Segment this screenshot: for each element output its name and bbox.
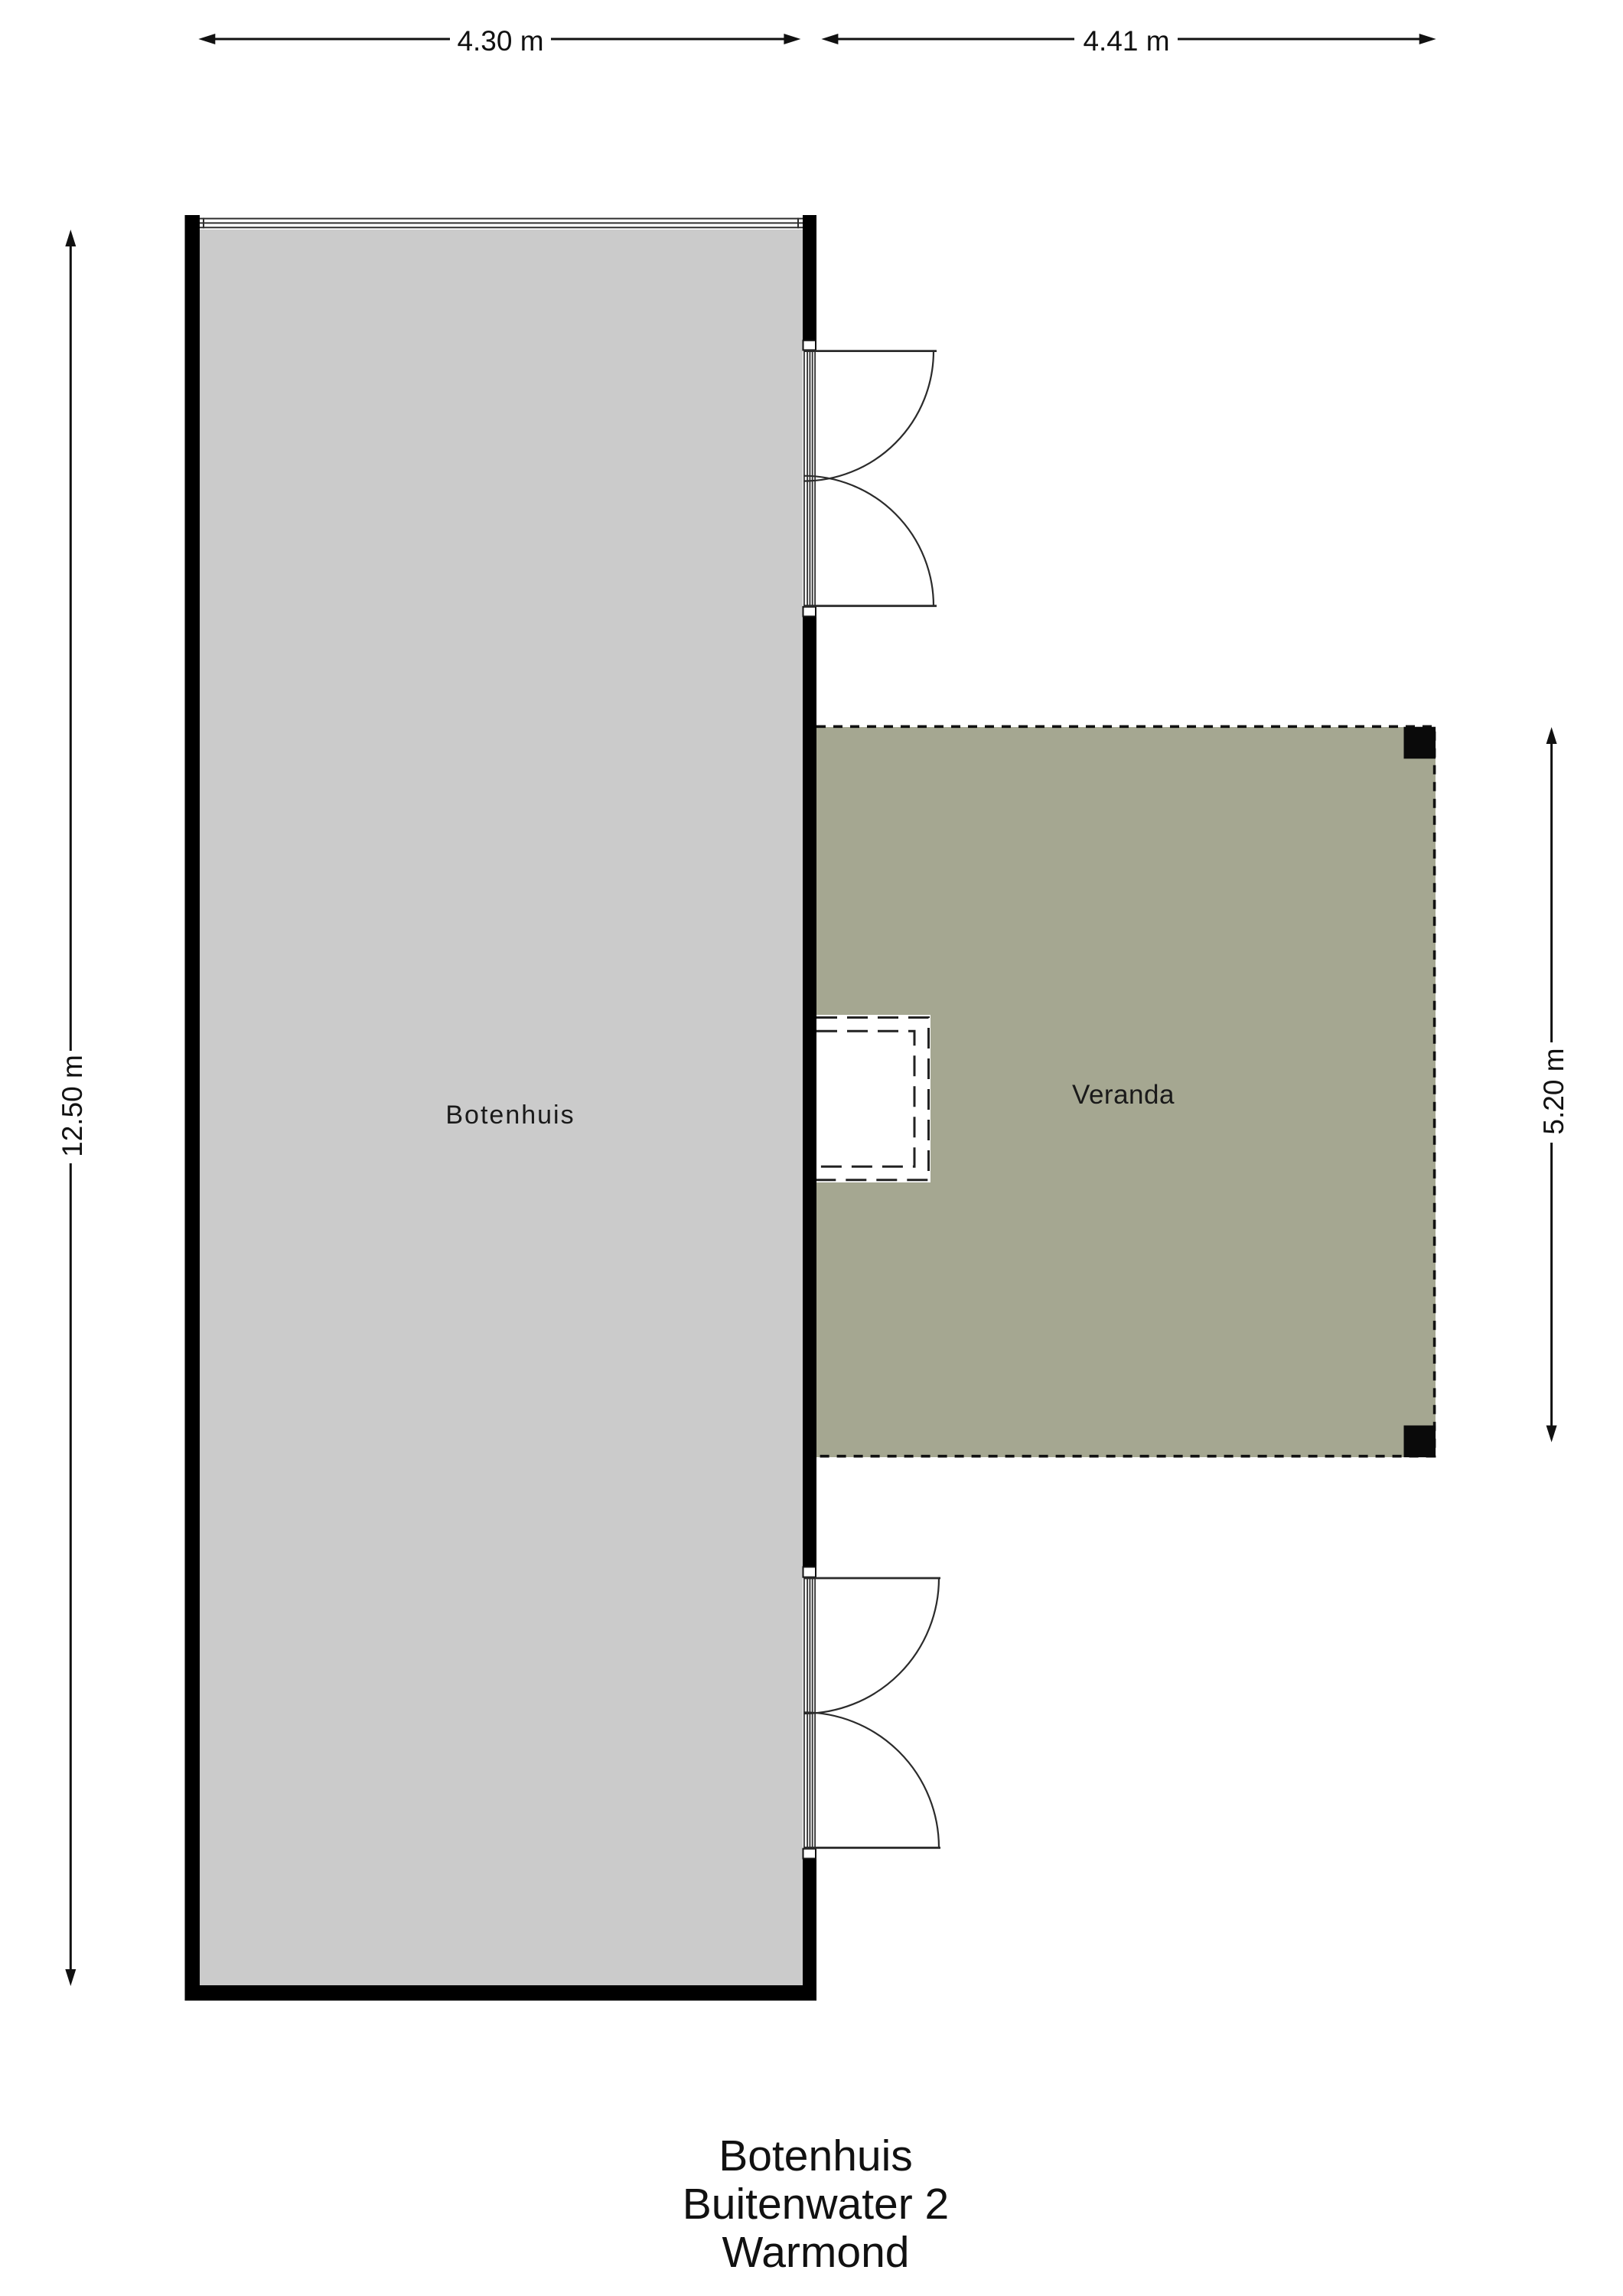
svg-text:4.30 m: 4.30 m (457, 25, 543, 57)
svg-text:5.20 m: 5.20 m (1538, 1048, 1569, 1134)
svg-text:12.50 m: 12.50 m (57, 1055, 88, 1157)
svg-text:Botenhuis: Botenhuis (719, 2131, 913, 2180)
svg-text:Botenhuis: Botenhuis (445, 1101, 575, 1130)
svg-text:4.41 m: 4.41 m (1083, 25, 1169, 57)
svg-text:Veranda: Veranda (1072, 1080, 1175, 1110)
svg-text:Warmond: Warmond (722, 2228, 910, 2277)
svg-text:Buitenwater 2: Buitenwater 2 (683, 2180, 950, 2229)
